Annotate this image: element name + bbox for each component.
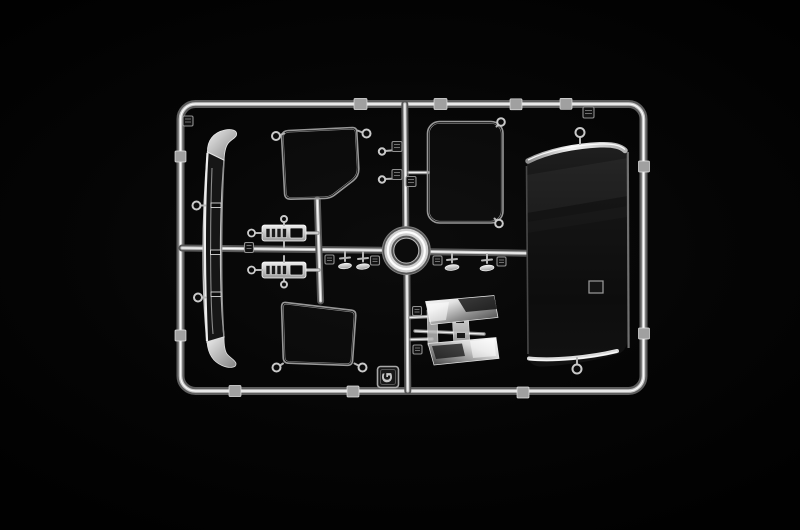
windscreen-bottom-flare [207,337,236,367]
lamp-lens [480,254,495,272]
gate-tab [175,330,186,341]
mirror-blade-upper [426,296,499,325]
instrument-cluster-lower [248,256,319,288]
pin-ring [248,267,255,274]
bracket-notch [457,333,465,338]
sprue-gate-lug [281,282,287,288]
runner-gate-knobs [379,142,402,183]
sprue-gate-lug [576,128,585,137]
sprue-gate-lug [363,130,371,138]
lower-window-pane [273,302,367,371]
cluster-cell [277,266,281,275]
ring-inner-rim [394,238,419,263]
photo-stage: G [0,0,800,530]
lens-body [480,264,495,271]
panel-right-edge [628,152,629,348]
sprue-gate-lug [359,364,367,372]
cluster-screen [290,265,303,275]
lens-stem [358,253,368,262]
part-number-tag [433,256,442,265]
part-number-tag [245,243,254,253]
moulding-tick [211,203,221,208]
sprue-gate-lug [573,365,582,374]
moulding-tick [211,292,221,297]
mirror-assembly [410,296,499,366]
sprue-gate-lug [194,294,202,302]
gate-tab [517,387,529,398]
lamp-lens [356,253,369,270]
instrument-cluster-upper [248,216,318,247]
sprue-photo: G [0,0,800,530]
pane-outline [282,302,356,365]
part-number-tag [413,345,422,354]
gate-tab [229,386,241,397]
part-number-tag [583,107,594,118]
sprue-gate-lug [497,118,505,126]
part-number-tag [413,307,422,316]
gate-tab [639,161,650,172]
gate-tab [560,98,572,109]
part-number-tag [406,177,416,187]
gate-tab [175,151,186,162]
sprue-gate-lug [273,364,281,372]
lamp-lens [338,252,351,269]
sprue-gate-lug [379,148,385,154]
cluster-cell [266,229,270,238]
gate-tab [347,386,359,397]
part-number-tag [392,170,402,180]
part-number-tag [325,255,334,264]
cluster-screen [290,228,303,238]
rear-roof-panel [526,128,629,374]
sprue-gate-lug [379,176,385,182]
part-number-tag [497,257,506,266]
lamp-lens [445,254,460,272]
cluster-cell [283,229,287,238]
runner-vertical [405,104,408,391]
panel-slot-detail [589,281,603,293]
runner-horizontal [182,248,526,253]
pane-outline [282,128,359,200]
side-window-pane [406,118,505,227]
pin-ring [248,230,255,237]
mirror-blade-lower [428,338,499,366]
sprue-gate-lug [281,216,287,222]
cluster-cell [277,229,281,238]
ring-hub [382,227,430,275]
gate-stem [355,364,359,366]
part-number-tag [392,142,402,152]
sprue-gate-lug [272,132,280,140]
pane-outline [428,122,504,224]
lens-body [445,264,460,271]
gate-tab [354,99,367,110]
moulding-tick [211,250,221,255]
lens-body [338,263,351,270]
gate-tab [639,328,650,339]
mirror-glint [470,339,496,358]
cluster-cell [266,266,270,275]
part-number-tag [183,116,193,126]
gate-tab [510,99,522,110]
gate-tab [434,99,447,110]
runner-secondary [317,200,320,301]
sprue-gate-lug [495,220,503,228]
sprue-letter: G [381,372,396,383]
lens-body [356,263,369,270]
upper-window-pane [272,128,371,200]
cluster-cell [272,266,276,275]
cluster-cell [272,229,276,238]
cluster-cell [283,266,287,275]
sprue-letter-tag: G [378,367,399,388]
frame-number-tags [183,107,594,126]
sprue-gate-lug [193,202,201,210]
mirror-glint [427,302,449,322]
part-number-tag [371,256,380,265]
